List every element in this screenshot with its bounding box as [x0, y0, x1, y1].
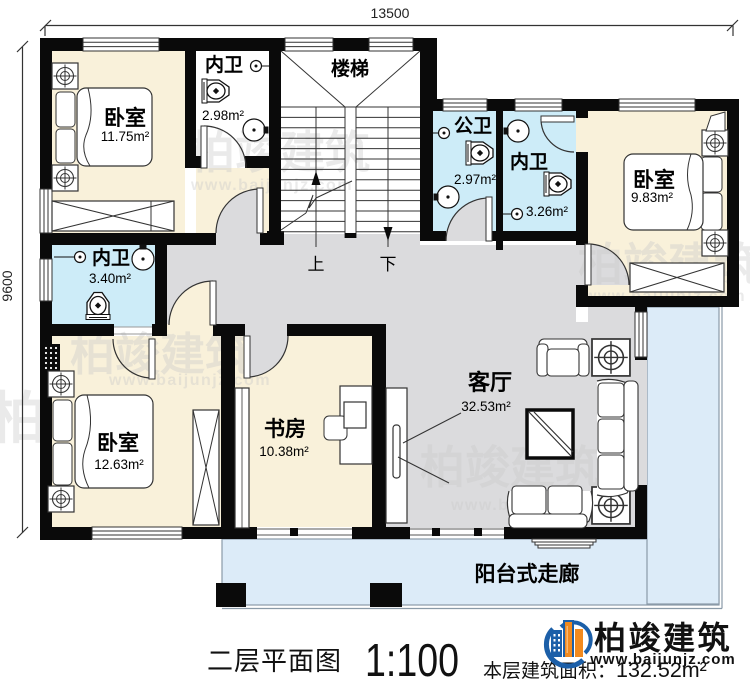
svg-text:卧室: 卧室 [104, 106, 146, 130]
svg-text:9.83m²: 9.83m² [631, 190, 674, 205]
svg-text:13500: 13500 [371, 5, 410, 21]
svg-text:楼梯: 楼梯 [331, 57, 369, 80]
svg-text:2.97m²: 2.97m² [454, 172, 497, 187]
svg-text:www.baijunjz.com: www.baijunjz.com [589, 651, 735, 668]
svg-text:2.98m²: 2.98m² [202, 108, 245, 123]
svg-text:二层平面图: 二层平面图 [207, 646, 341, 676]
svg-text:10.38m²: 10.38m² [259, 444, 309, 459]
svg-text:阳台式走廊: 阳台式走廊 [475, 562, 580, 586]
svg-text:32.53m²: 32.53m² [461, 399, 511, 414]
svg-text:卧室: 卧室 [633, 168, 675, 192]
svg-text:公卫: 公卫 [454, 115, 492, 137]
svg-text:11.75m²: 11.75m² [101, 129, 150, 144]
svg-text:上: 上 [308, 255, 325, 274]
svg-text:内卫: 内卫 [510, 150, 548, 173]
svg-text:下: 下 [380, 255, 397, 274]
svg-text:内卫: 内卫 [92, 246, 130, 269]
svg-text:内卫: 内卫 [205, 53, 243, 76]
svg-text:卧室: 卧室 [97, 431, 139, 455]
svg-text:9600: 9600 [0, 270, 15, 301]
svg-text:3.26m²: 3.26m² [526, 204, 569, 219]
svg-text:1:100: 1:100 [365, 634, 459, 684]
svg-text:3.40m²: 3.40m² [89, 271, 132, 286]
svg-text:书房: 书房 [264, 417, 306, 441]
svg-text:12.63m²: 12.63m² [94, 457, 144, 472]
svg-text:客厅: 客厅 [468, 370, 512, 395]
